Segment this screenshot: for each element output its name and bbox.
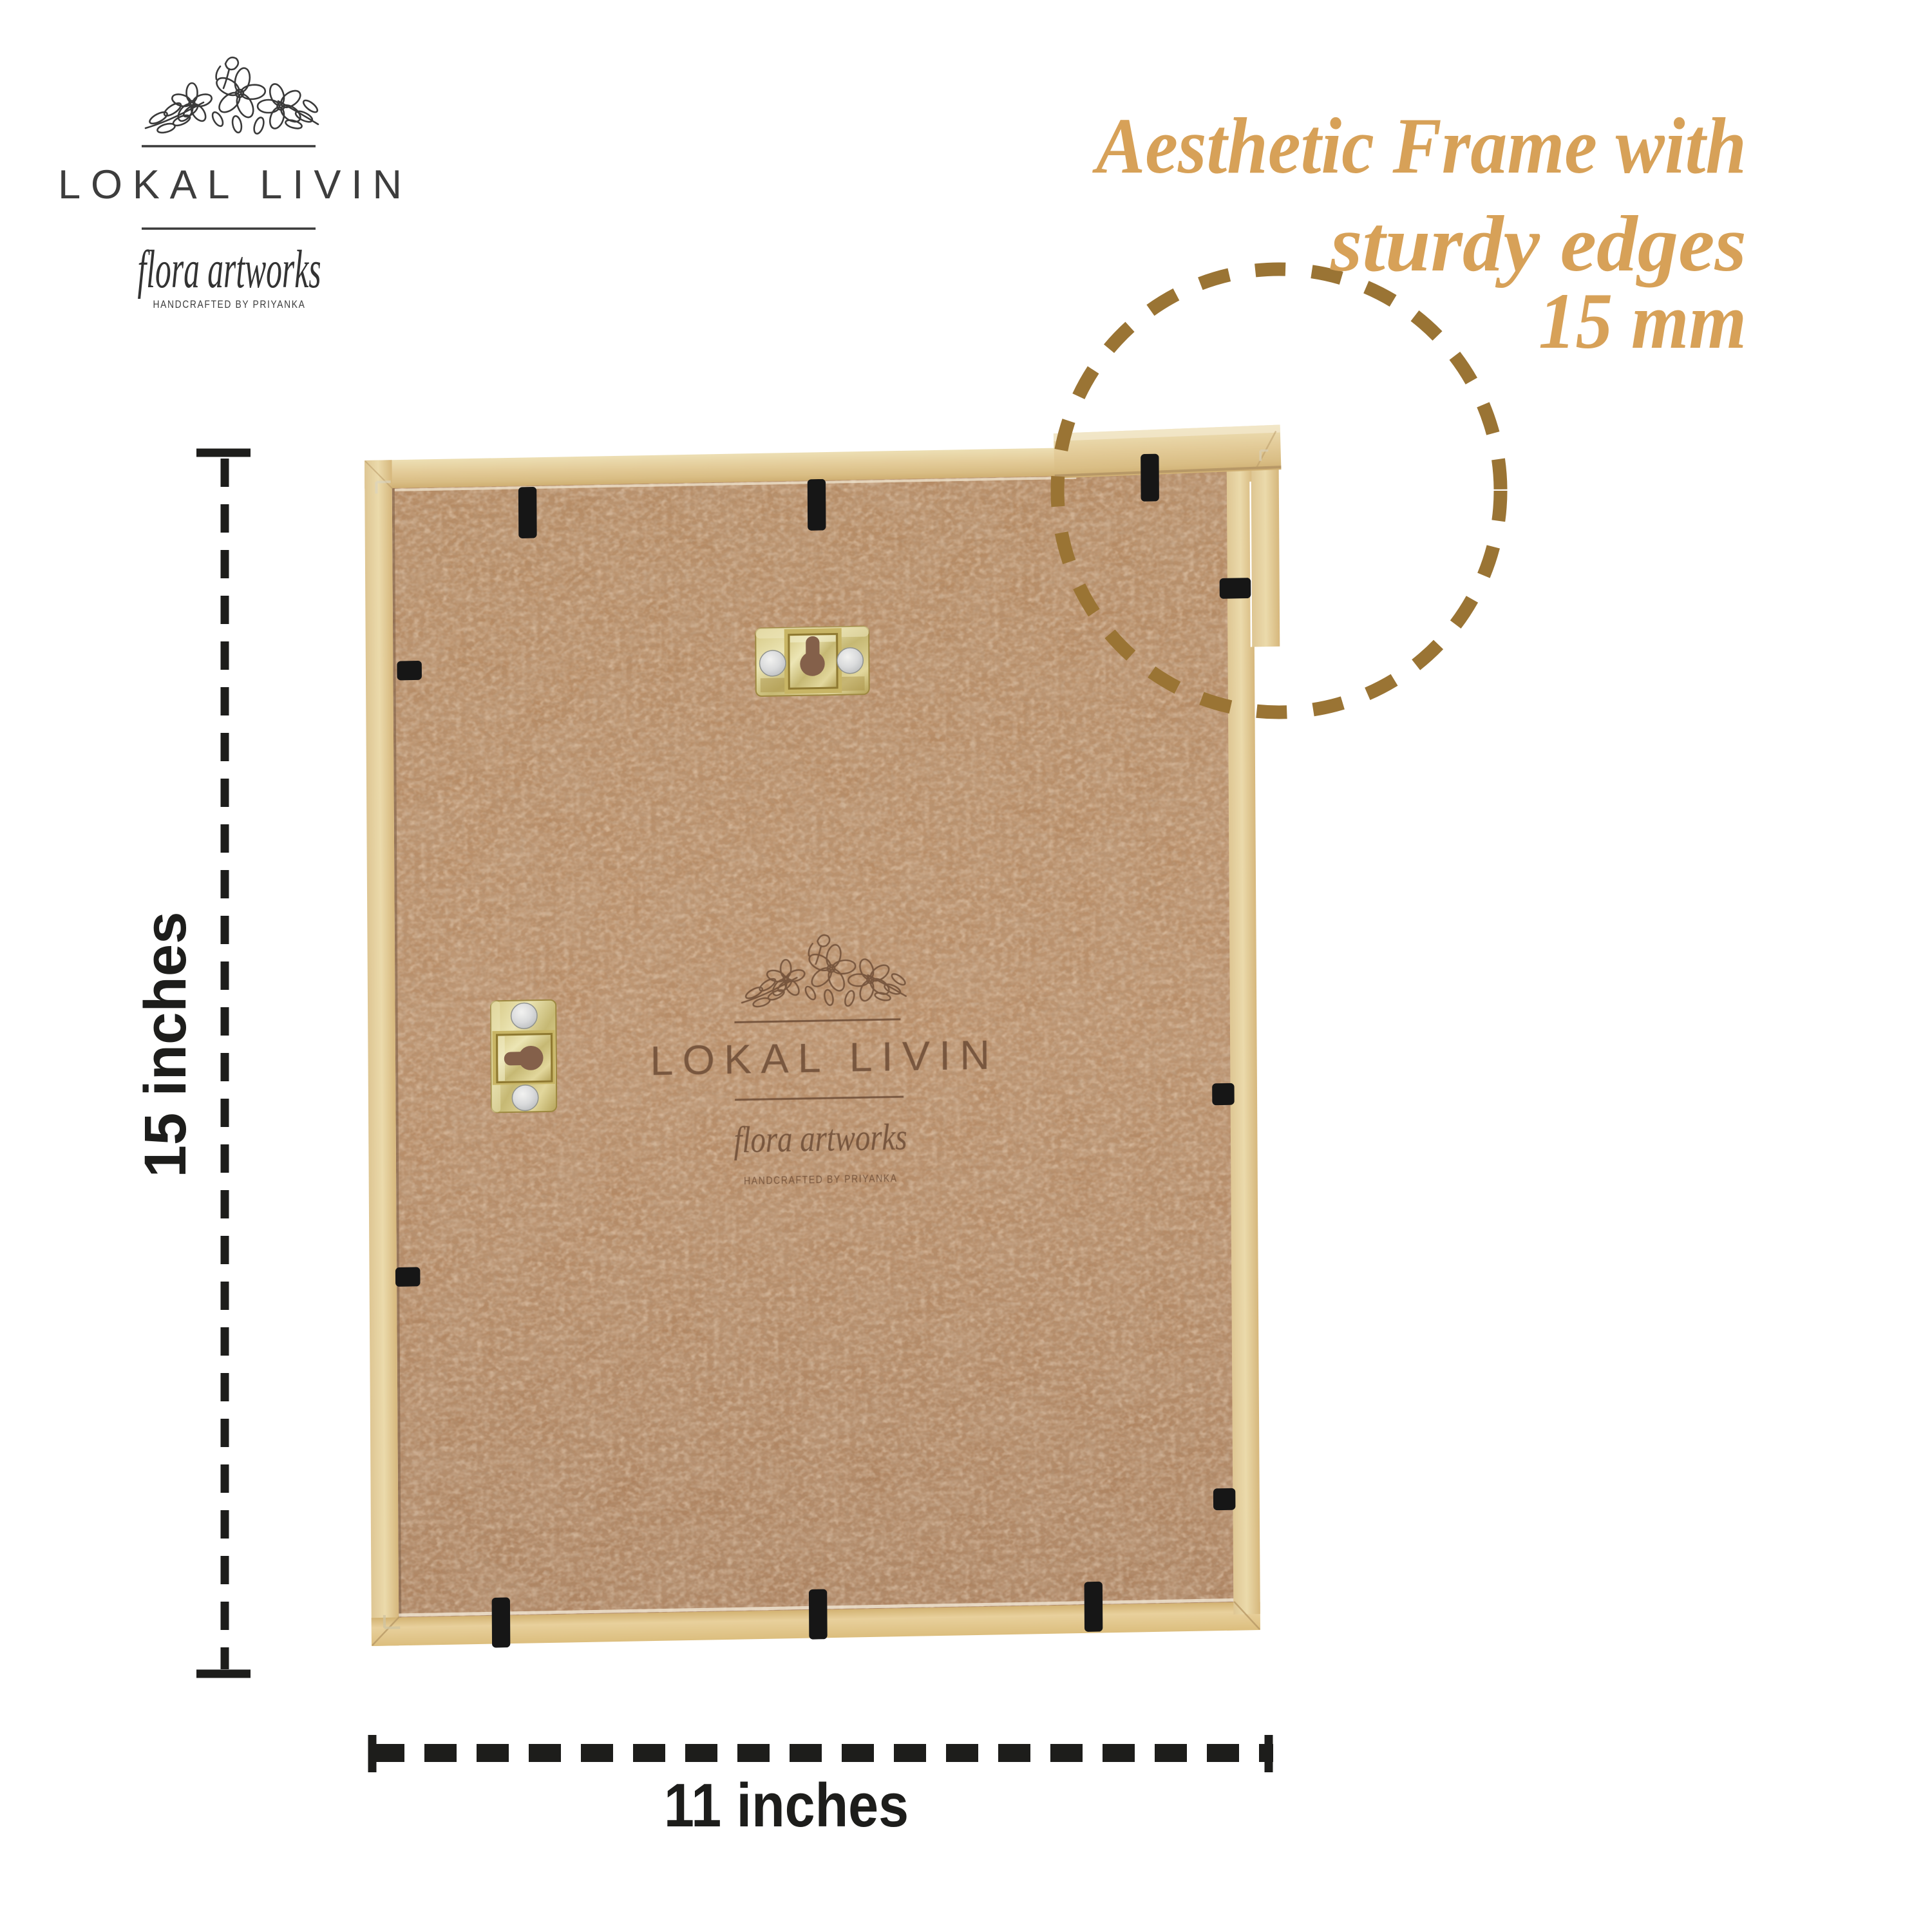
- svg-text:11 inches: 11 inches: [664, 1771, 909, 1840]
- svg-text:LOKAL LIVIN: LOKAL LIVIN: [650, 1032, 999, 1084]
- svg-text:Aesthetic Frame with: Aesthetic Frame with: [1092, 102, 1747, 190]
- svg-text:HANDCRAFTED BY PRIYANKA: HANDCRAFTED BY PRIYANKA: [153, 298, 306, 310]
- svg-text:15 inches: 15 inches: [133, 912, 198, 1178]
- svg-text:LOKAL LIVIN: LOKAL LIVIN: [58, 162, 412, 207]
- svg-text:flora artworks: flora artworks: [138, 240, 321, 299]
- svg-text:flora artworks: flora artworks: [734, 1116, 907, 1160]
- svg-text:sturdy edges: sturdy edges: [1330, 200, 1747, 288]
- svg-text:15 mm: 15 mm: [1539, 277, 1747, 365]
